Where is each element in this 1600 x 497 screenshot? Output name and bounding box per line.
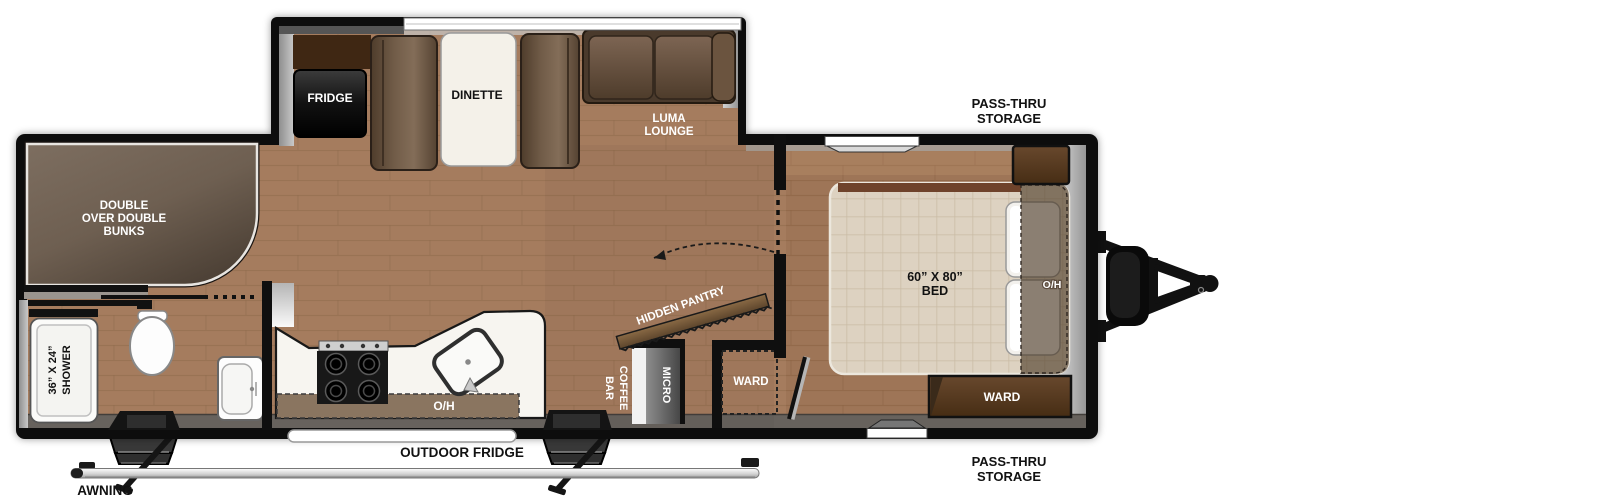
- svg-text:MICRO: MICRO: [660, 367, 672, 404]
- svg-text:LOUNGE: LOUNGE: [644, 126, 694, 138]
- svg-text:OUTDOOR FRIDGE: OUTDOOR FRIDGE: [400, 445, 524, 460]
- svg-text:PASS-THRU: PASS-THRU: [972, 96, 1047, 111]
- svg-text:60” X 80”: 60” X 80”: [907, 270, 963, 284]
- svg-text:OVER DOUBLE: OVER DOUBLE: [82, 213, 167, 225]
- svg-text:BAR: BAR: [603, 376, 615, 400]
- svg-text:STORAGE: STORAGE: [977, 111, 1041, 126]
- svg-text:O/H: O/H: [1043, 279, 1062, 291]
- svg-text:WARD: WARD: [984, 390, 1021, 404]
- svg-text:BED: BED: [922, 284, 948, 298]
- svg-text:BUNKS: BUNKS: [104, 226, 145, 238]
- svg-text:PASS-THRU: PASS-THRU: [972, 454, 1047, 469]
- svg-text:COFFEE: COFFEE: [617, 366, 629, 411]
- svg-text:STORAGE: STORAGE: [977, 469, 1041, 484]
- svg-text:O/H: O/H: [433, 399, 454, 413]
- svg-text:36” X 24”: 36” X 24”: [47, 346, 59, 395]
- svg-text:LUMA: LUMA: [652, 113, 685, 125]
- svg-text:DOUBLE: DOUBLE: [100, 200, 149, 212]
- svg-text:FRIDGE: FRIDGE: [307, 91, 352, 105]
- svg-text:AWNING: AWNING: [77, 483, 133, 497]
- svg-text:WARD: WARD: [733, 376, 768, 388]
- svg-text:SHOWER: SHOWER: [61, 345, 73, 395]
- svg-text:DINETTE: DINETTE: [451, 88, 502, 102]
